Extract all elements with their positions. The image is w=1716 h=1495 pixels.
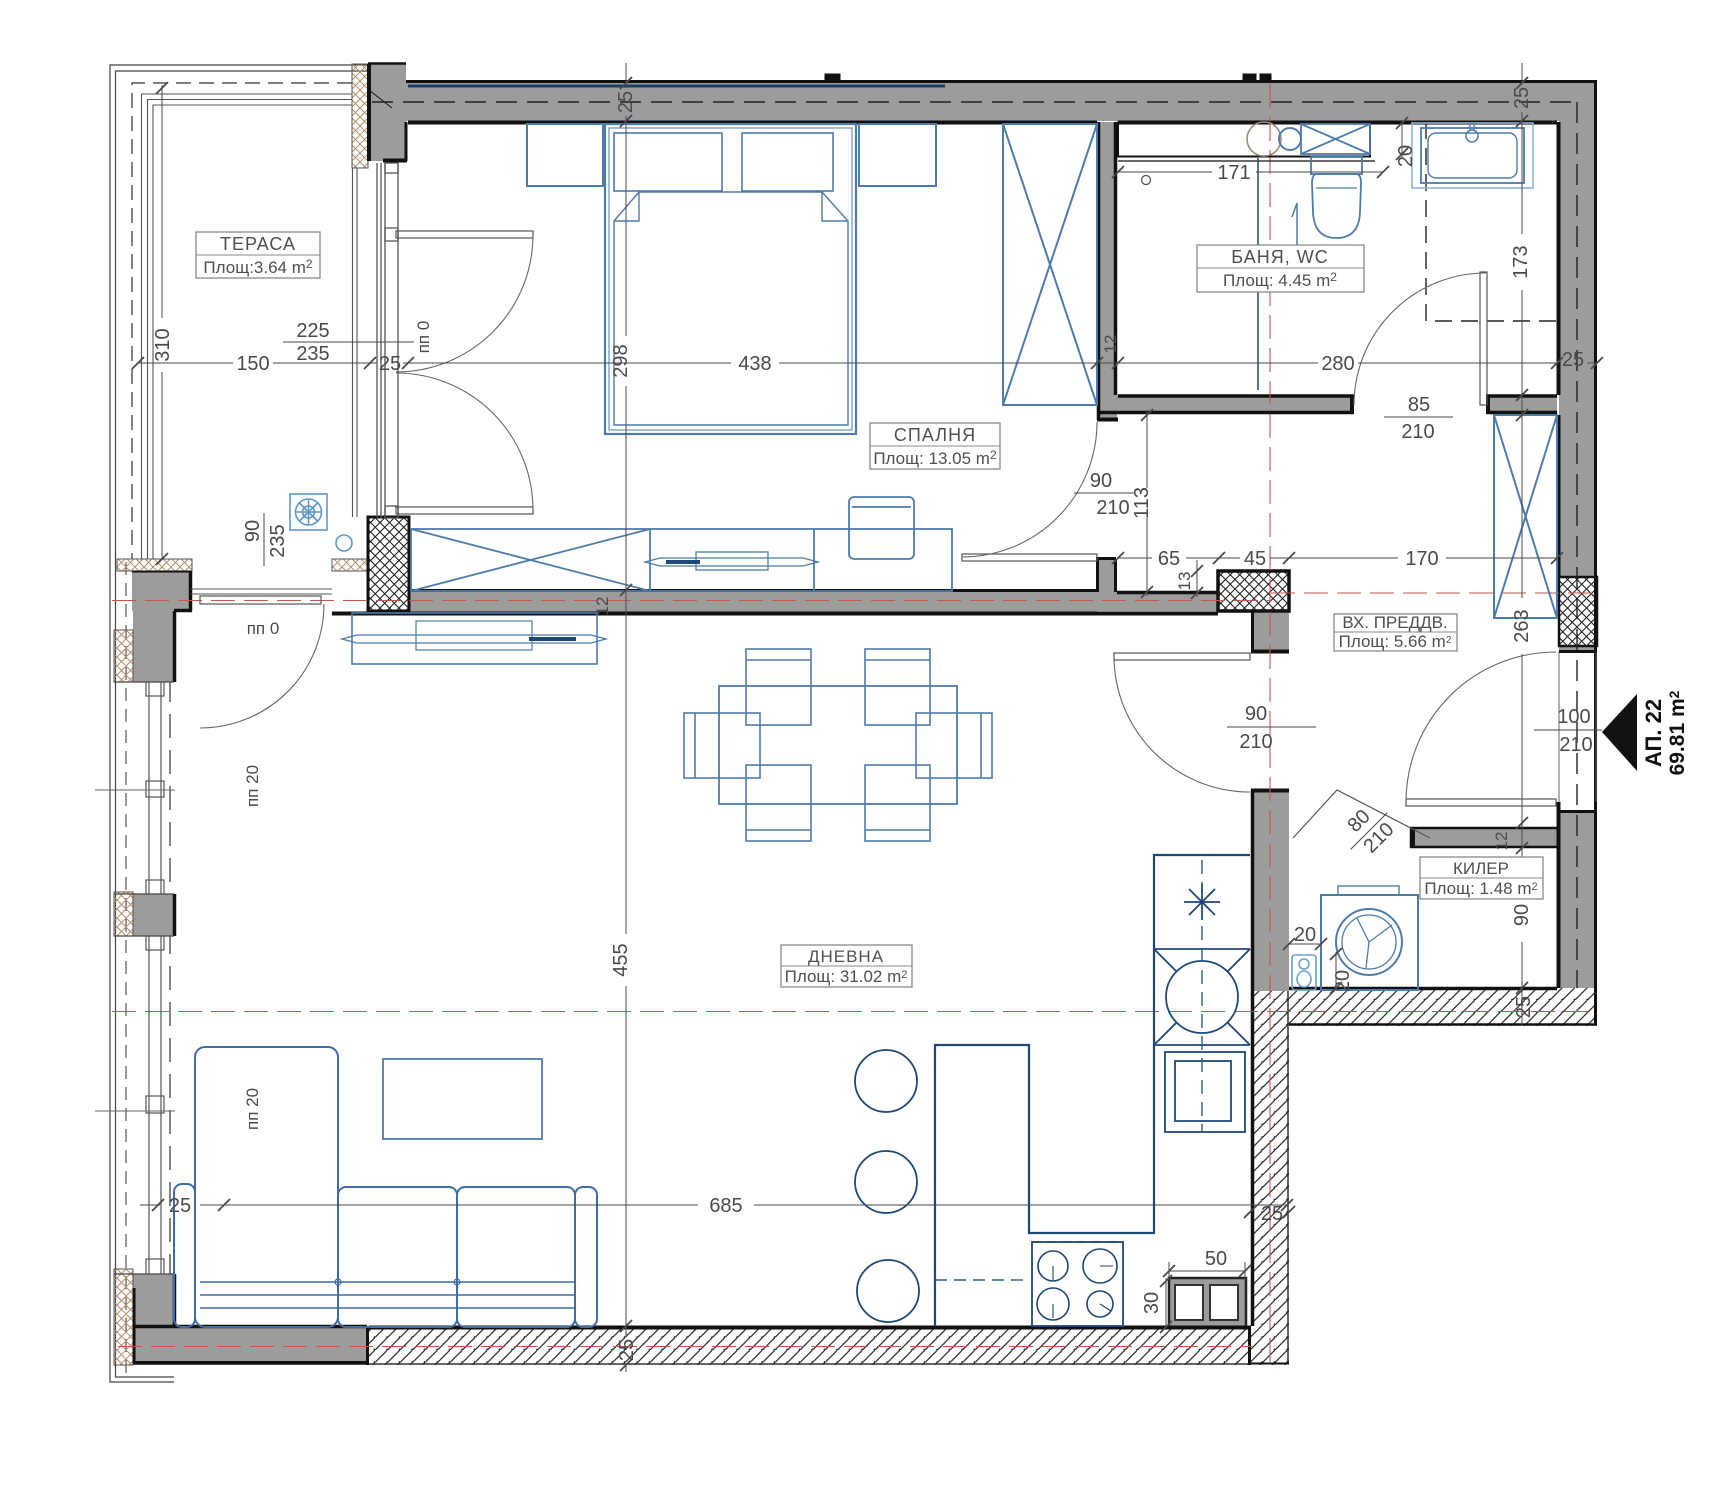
svg-text:25: 25 [379, 353, 401, 375]
svg-text:КИЛЕР: КИЛЕР [1453, 859, 1509, 878]
svg-text:20: 20 [1294, 924, 1316, 946]
svg-text:ВХ. ПРЕДДВ.: ВХ. ПРЕДДВ. [1342, 613, 1447, 632]
svg-text:50: 50 [1205, 1248, 1227, 1270]
svg-text:25: 25 [1511, 87, 1533, 109]
svg-text:Площ: 4.45 m2: Площ: 4.45 m2 [1223, 270, 1337, 290]
svg-text:225: 225 [296, 320, 329, 342]
svg-text:СПАЛНЯ: СПАЛНЯ [894, 425, 976, 445]
svg-text:173: 173 [1510, 245, 1532, 278]
svg-text:25: 25 [1562, 349, 1584, 371]
svg-text:90: 90 [1090, 470, 1112, 492]
svg-text:171: 171 [1217, 162, 1250, 184]
svg-text:25: 25 [169, 1195, 191, 1217]
svg-text:20: 20 [1395, 145, 1417, 167]
svg-text:69.81 m2: 69.81 m2 [1666, 690, 1689, 775]
svg-text:210: 210 [1401, 421, 1434, 443]
svg-text:пп 0: пп 0 [414, 321, 433, 354]
svg-text:100: 100 [1557, 706, 1590, 728]
svg-text:ТЕРАСА: ТЕРАСА [220, 234, 296, 254]
svg-text:25: 25 [1261, 1203, 1283, 1225]
svg-text:25: 25 [1513, 996, 1535, 1018]
svg-text:ДНЕВНА: ДНЕВНА [808, 947, 884, 966]
svg-text:310: 310 [152, 328, 174, 361]
svg-text:Площ: 31.02 m2: Площ: 31.02 m2 [785, 967, 908, 986]
svg-text:30: 30 [1141, 1292, 1163, 1314]
svg-text:235: 235 [296, 343, 329, 365]
svg-text:210: 210 [1559, 734, 1592, 756]
svg-text:АП. 22: АП. 22 [1641, 699, 1666, 767]
svg-text:25: 25 [615, 91, 637, 113]
svg-text:150: 150 [236, 353, 269, 375]
svg-text:Площ:3.64 m2: Площ:3.64 m2 [203, 257, 312, 277]
svg-text:12: 12 [1101, 335, 1120, 354]
svg-text:65: 65 [1158, 548, 1180, 570]
svg-text:210: 210 [1096, 497, 1129, 519]
svg-text:25: 25 [616, 1339, 638, 1361]
svg-text:Площ: 13.05 m2: Площ: 13.05 m2 [873, 448, 997, 468]
svg-text:Площ: 1.48 m2: Площ: 1.48 m2 [1424, 879, 1537, 898]
svg-text:685: 685 [709, 1195, 742, 1217]
svg-text:298: 298 [610, 344, 632, 377]
svg-text:пп 20: пп 20 [243, 765, 262, 807]
svg-text:12: 12 [593, 597, 612, 616]
svg-text:210: 210 [1239, 731, 1272, 753]
svg-text:13: 13 [1175, 572, 1194, 591]
svg-text:438: 438 [738, 353, 771, 375]
svg-text:113: 113 [1131, 487, 1153, 519]
svg-text:280: 280 [1321, 353, 1354, 375]
svg-text:90: 90 [1245, 703, 1267, 725]
svg-text:БАНЯ, WC: БАНЯ, WC [1231, 247, 1328, 267]
svg-text:45: 45 [1244, 548, 1266, 570]
svg-text:12: 12 [1492, 832, 1511, 851]
svg-text:455: 455 [610, 943, 632, 976]
svg-text:Площ: 5.66 m2: Площ: 5.66 m2 [1339, 632, 1452, 651]
svg-text:235: 235 [267, 524, 289, 557]
svg-text:20: 20 [1332, 970, 1354, 992]
svg-text:85: 85 [1408, 394, 1430, 416]
svg-text:170: 170 [1405, 548, 1438, 570]
svg-text:263: 263 [1511, 609, 1533, 642]
svg-text:90: 90 [1511, 904, 1533, 926]
svg-text:пп 20: пп 20 [243, 1088, 262, 1130]
svg-text:пп 0: пп 0 [247, 619, 280, 638]
svg-text:90: 90 [242, 520, 264, 542]
